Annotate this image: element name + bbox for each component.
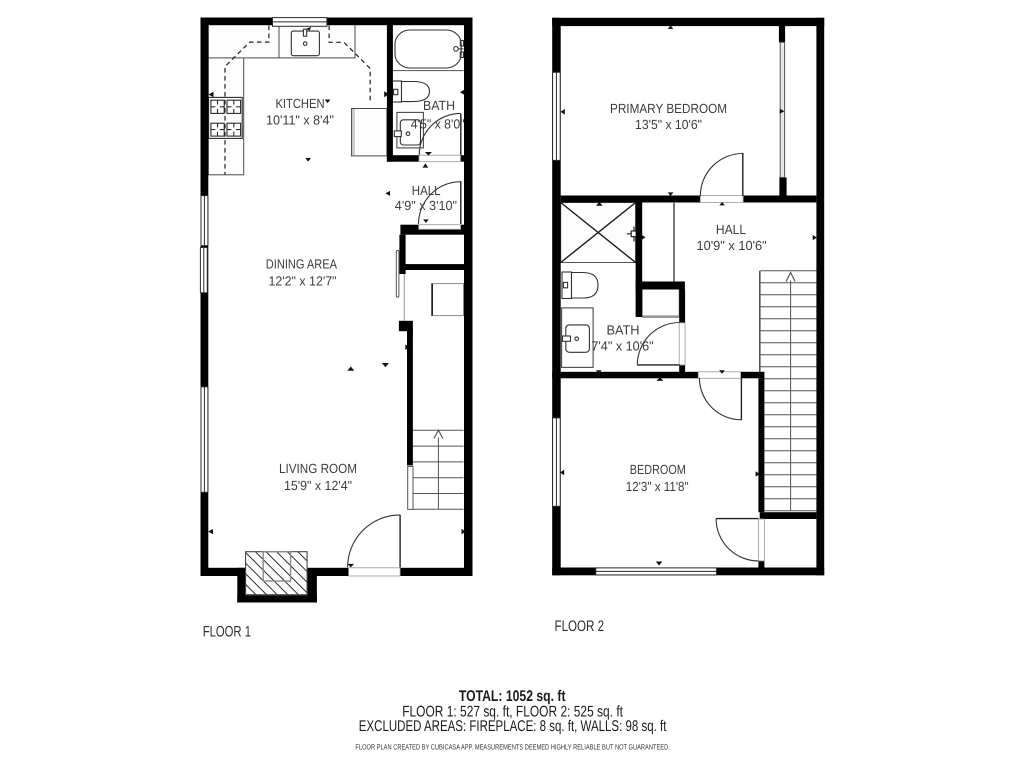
svg-text:TOTAL: 1052 sq. ft: TOTAL: 1052 sq. ft [459, 688, 566, 705]
svg-text:4'9" x 3'10": 4'9" x 3'10" [395, 198, 457, 213]
svg-text:BATH: BATH [423, 98, 455, 113]
svg-text:12'3" x 11'8": 12'3" x 11'8" [626, 479, 689, 494]
svg-text:KITCHEN: KITCHEN [275, 96, 324, 111]
svg-text:12'2" x 12'7": 12'2" x 12'7" [269, 273, 337, 288]
svg-text:15'9" x 12'4": 15'9" x 12'4" [284, 478, 352, 493]
svg-text:4'5" x 8'0": 4'5" x 8'0" [411, 117, 465, 132]
svg-text:BATH: BATH [607, 322, 640, 337]
svg-text:BEDROOM: BEDROOM [630, 462, 686, 477]
svg-text:PRIMARY BEDROOM: PRIMARY BEDROOM [610, 101, 727, 116]
svg-text:EXCLUDED AREAS: FIREPLACE: 8 s: EXCLUDED AREAS: FIREPLACE: 8 sq. ft, WAL… [359, 718, 667, 735]
svg-text:10'11" x 8'4": 10'11" x 8'4" [266, 113, 334, 128]
svg-text:HALL: HALL [412, 183, 441, 198]
svg-text:13'5" x 10'6": 13'5" x 10'6" [635, 117, 702, 132]
svg-text:FLOOR 1: FLOOR 1 [203, 623, 251, 640]
svg-text:HALL: HALL [716, 222, 746, 237]
svg-text:FLOOR 2: FLOOR 2 [555, 618, 605, 635]
svg-text:LIVING ROOM: LIVING ROOM [279, 461, 357, 476]
svg-text:DINING AREA: DINING AREA [266, 256, 337, 271]
svg-text:10'9" x 10'6": 10'9" x 10'6" [696, 238, 767, 253]
svg-text:7'4" x 10'6": 7'4" x 10'6" [591, 338, 654, 353]
svg-text:FLOOR PLAN CREATED BY CUBICASA: FLOOR PLAN CREATED BY CUBICASA APP. MEAS… [355, 743, 669, 752]
